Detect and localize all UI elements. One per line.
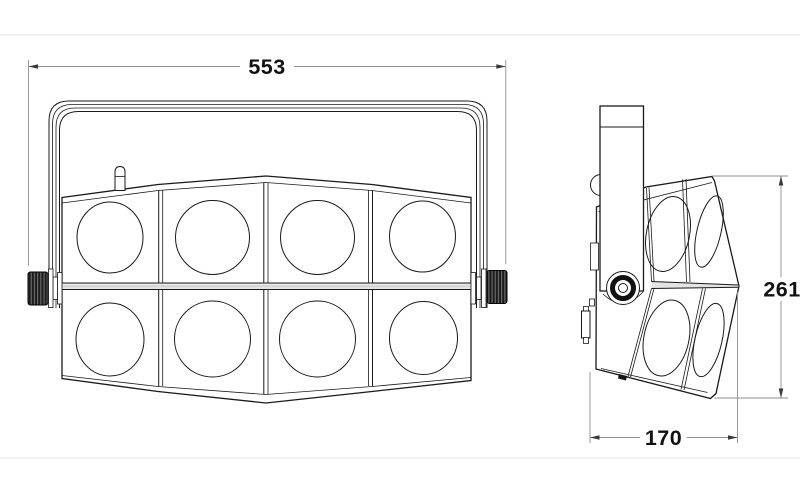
vent-plate [591,243,599,270]
top-thumbscrew [115,167,125,191]
connector-plate [582,311,591,338]
dim-height-label: 261 [763,278,800,302]
knurled-knob [28,272,48,305]
connector-tab [584,338,589,344]
front-mid-band [62,283,471,290]
tilt-knob-left [28,269,62,308]
yoke-arm-side [600,106,644,291]
dim-depth-label: 170 [645,426,682,450]
side-view [582,106,740,399]
knurled-knob [487,271,507,304]
drawing-canvas: 553 261 170 [0,0,800,500]
dim-width-label: 553 [248,55,285,79]
switch-notch [590,299,595,306]
front-body [62,176,471,403]
front-view [28,101,507,403]
